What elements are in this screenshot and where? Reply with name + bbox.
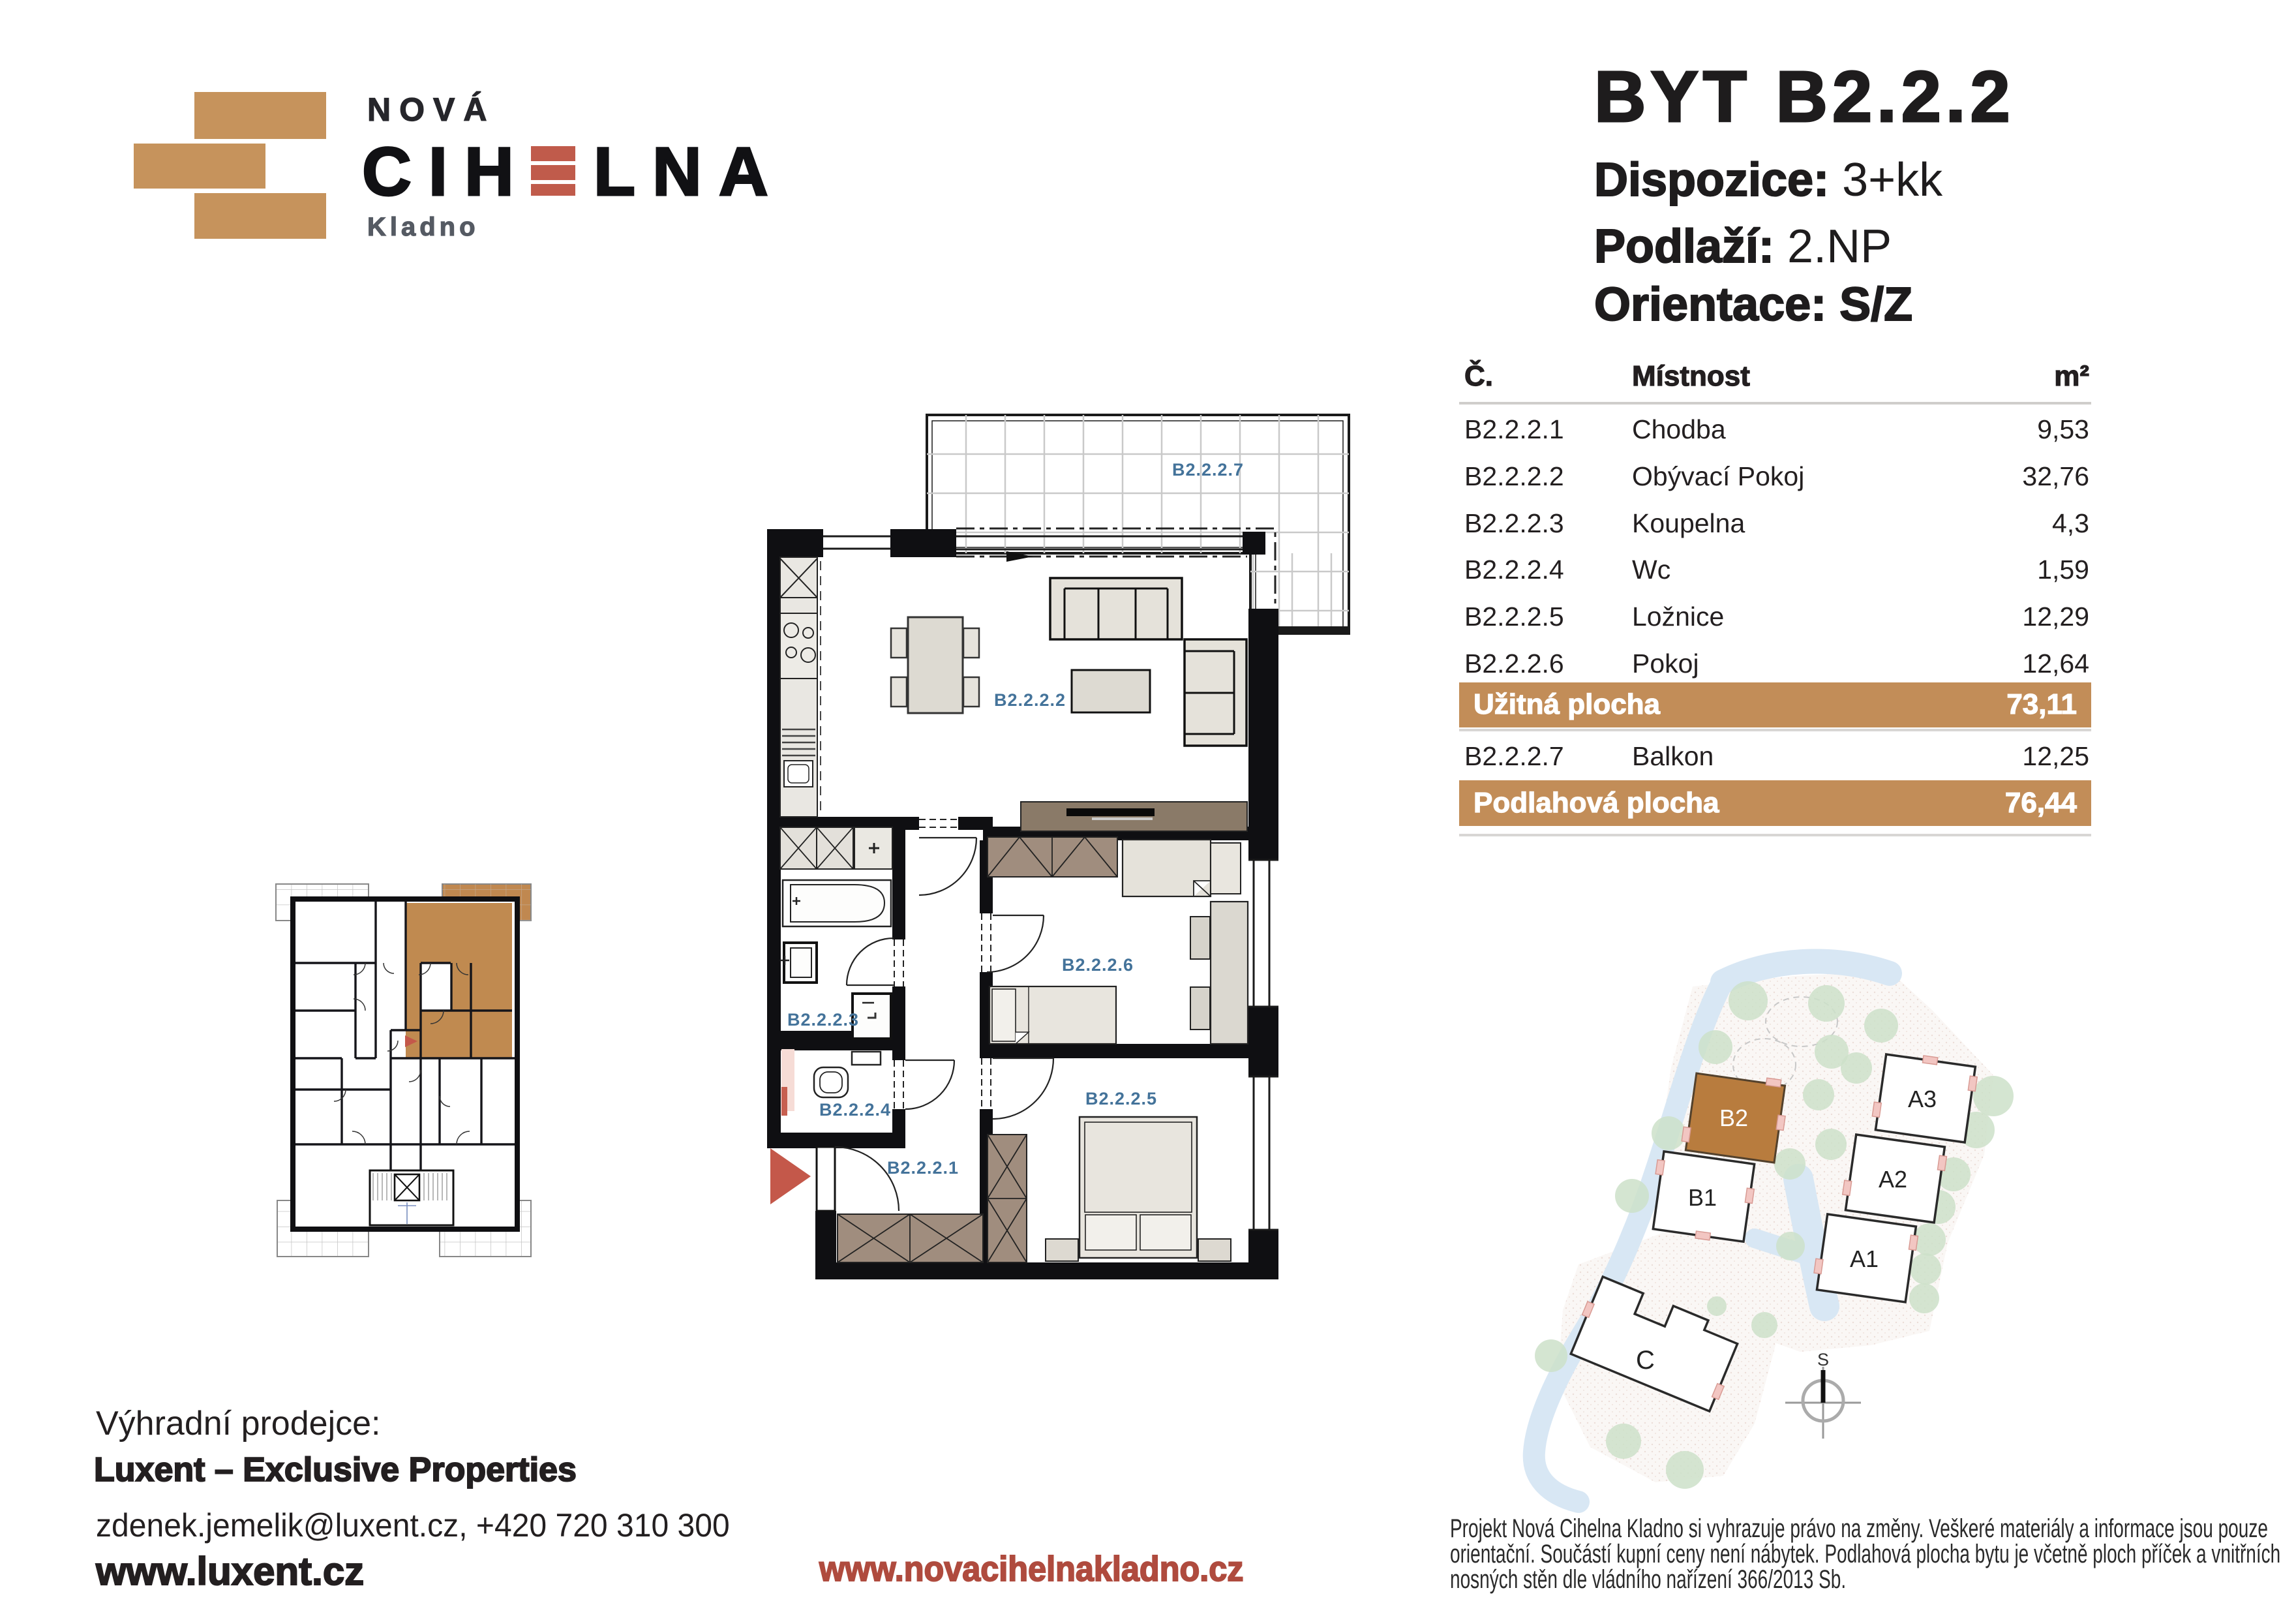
- svg-text:B2.2.2.3: B2.2.2.3: [787, 1010, 859, 1030]
- svg-text:A1: A1: [1850, 1245, 1879, 1272]
- svg-text:B1: B1: [1688, 1184, 1717, 1211]
- svg-text:S: S: [1817, 1350, 1829, 1369]
- svg-text:C: C: [1636, 1346, 1655, 1375]
- svg-text:A3: A3: [1908, 1086, 1937, 1112]
- svg-text:B2.2.2.2: B2.2.2.2: [994, 690, 1066, 710]
- svg-text:B2: B2: [1719, 1105, 1748, 1131]
- svg-text:B2.2.2.5: B2.2.2.5: [1085, 1089, 1157, 1108]
- svg-text:A2: A2: [1879, 1166, 1907, 1193]
- svg-text:B2.2.2.7: B2.2.2.7: [1172, 460, 1244, 480]
- svg-text:B2.2.2.6: B2.2.2.6: [1062, 955, 1134, 975]
- svg-text:B2.2.2.1: B2.2.2.1: [887, 1158, 959, 1178]
- svg-text:B2.2.2.4: B2.2.2.4: [819, 1100, 891, 1120]
